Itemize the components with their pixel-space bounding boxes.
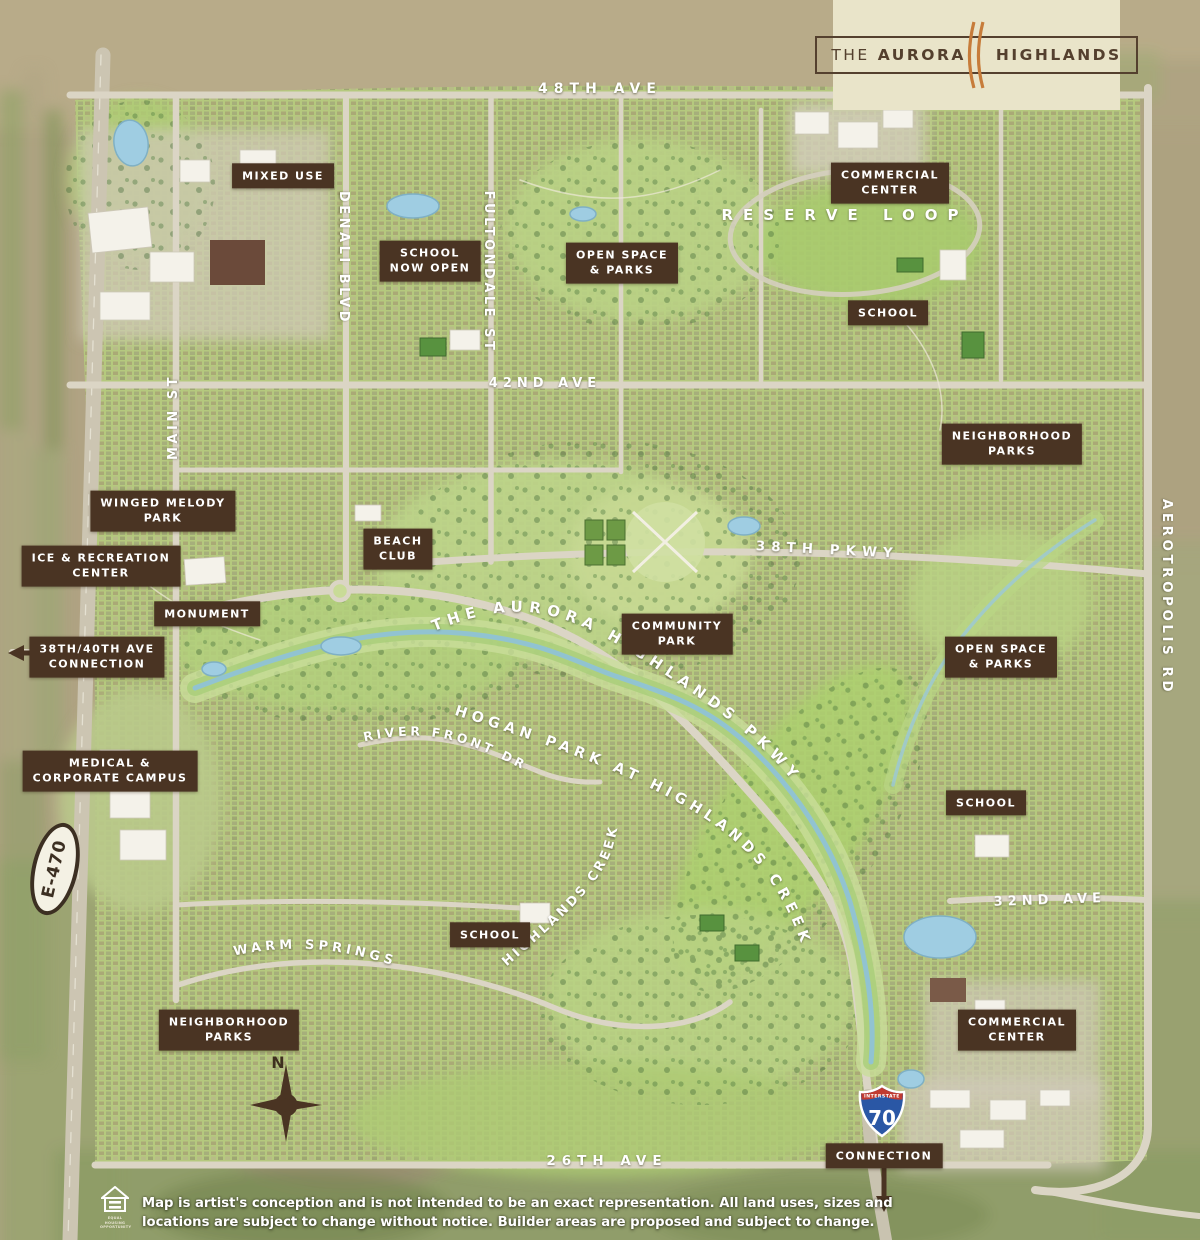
label-mixed-use: MIXED USE	[232, 163, 334, 188]
map-disclaimer: EQUAL HOUSING OPPORTUNITY Map is artist'…	[100, 1186, 893, 1232]
shield-interstate-text: INTERSTATE	[864, 1094, 900, 1100]
label-open-space-parks-east: OPEN SPACE& PARKS	[945, 637, 1057, 678]
compass-north-label: N	[271, 1053, 284, 1072]
i70-interstate-shield: INTERSTATE 70	[858, 1084, 906, 1138]
street-label-42nd-ave: 42ND AVE	[489, 376, 601, 391]
street-label-26th-ave: 26TH AVE	[546, 1153, 667, 1169]
label-commercial-center-south: COMMERCIALCENTER	[958, 1010, 1076, 1051]
label-medical-corporate-campus: MEDICAL &CORPORATE CAMPUS	[23, 751, 198, 792]
label-winged-melody-park: WINGED MELODYPARK	[90, 491, 235, 532]
masterplan-map: 48TH AVE 42ND AVE RESERVE LOOP 38TH PKWY…	[0, 0, 1200, 1240]
label-neighborhood-parks-east: NEIGHBORHOODPARKS	[942, 424, 1082, 465]
label-commercial-center-north: COMMERCIALCENTER	[831, 163, 949, 204]
label-school-now-open: SCHOOLNOW OPEN	[380, 241, 481, 282]
aurora-highlands-logo: THE AURORA HIGHLANDS	[833, 0, 1120, 110]
disclaimer-line-2: locations are subject to change without …	[142, 1213, 893, 1232]
label-school-northeast: SCHOOL	[848, 300, 928, 325]
equal-housing-icon: EQUAL HOUSING OPPORTUNITY	[100, 1186, 130, 1232]
label-ice-recreation-center: ICE & RECREATIONCENTER	[22, 546, 181, 587]
label-38th-40th-ave-connection: 38TH/40TH AVECONNECTION	[29, 637, 164, 678]
label-i70-connection: CONNECTION	[826, 1143, 943, 1168]
shield-route-number: 70	[868, 1106, 896, 1130]
street-label-48th-ave: 48TH AVE	[538, 81, 662, 97]
logo-word-the: THE	[831, 46, 869, 64]
street-label-aerotropolis-rd: AEROTROPOLIS RD	[1159, 499, 1175, 695]
street-label-denali-blvd: DENALI BLVD	[336, 191, 351, 325]
label-community-park: COMMUNITYPARK	[622, 614, 733, 655]
logo-slashes-icon	[961, 20, 987, 90]
disclaimer-line-1: Map is artist's conception and is not in…	[142, 1194, 893, 1213]
label-school-south: SCHOOL	[450, 922, 530, 947]
label-school-east: SCHOOL	[946, 790, 1026, 815]
label-neighborhood-parks-southwest: NEIGHBORHOODPARKS	[159, 1010, 299, 1051]
compass-rose-icon: N	[250, 1050, 326, 1144]
label-monument: MONUMENT	[154, 601, 260, 626]
street-label-fultondale-st: FULTONDALE ST	[481, 191, 496, 354]
logo-word-aurora: AURORA	[878, 46, 966, 64]
logo-word-highlands: HIGHLANDS	[996, 46, 1122, 64]
street-label-reserve-loop: RESERVE LOOP	[722, 206, 969, 224]
street-label-main-st: MAIN ST	[166, 374, 181, 460]
label-open-space-parks-north: OPEN SPACE& PARKS	[566, 243, 678, 284]
label-beach-club: BEACHCLUB	[363, 529, 432, 570]
